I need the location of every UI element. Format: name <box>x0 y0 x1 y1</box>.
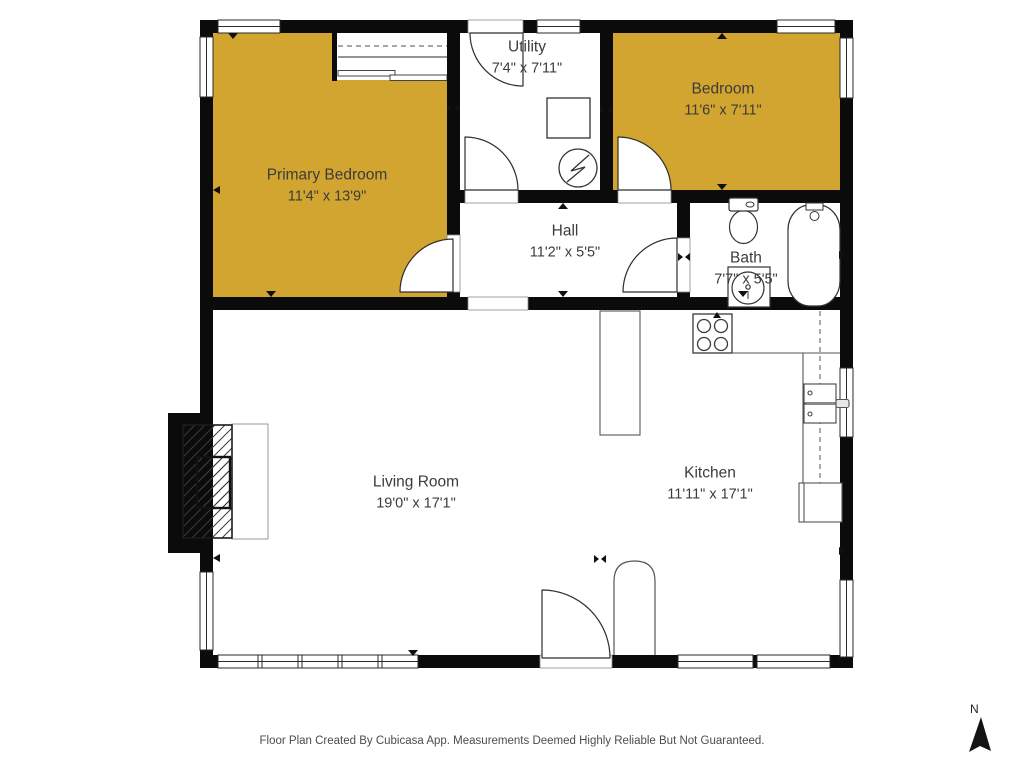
compass-north-label: N <box>970 702 979 716</box>
window <box>537 20 580 33</box>
compass: N <box>952 700 1012 762</box>
footer-disclaimer: Floor Plan Created By Cubicasa App. Meas… <box>0 735 1024 747</box>
arched-fixture-icon <box>614 561 655 655</box>
stove-icon <box>693 314 732 353</box>
window <box>200 572 213 650</box>
window <box>840 580 853 657</box>
window <box>777 20 835 33</box>
window <box>678 655 753 668</box>
toilet-icon <box>729 198 758 244</box>
bathroom-sink-icon <box>728 267 770 307</box>
washer-icon <box>547 98 590 138</box>
utility-hall-door <box>465 137 518 190</box>
highlighted-rooms <box>213 33 840 297</box>
utility-exterior-door <box>470 33 523 86</box>
window <box>757 655 830 668</box>
window <box>840 38 853 98</box>
peninsula-cabinet <box>600 311 640 435</box>
closet-icon <box>332 33 447 81</box>
front-door <box>542 590 610 658</box>
window <box>200 37 213 97</box>
window <box>218 655 418 668</box>
floor-plan-page: Primary Bedroom 11'4" x 13'9" Utility 7'… <box>0 0 1024 768</box>
bath-door <box>623 238 677 292</box>
floor-plan-drawing <box>0 0 1024 768</box>
north-arrow-icon <box>952 700 1012 762</box>
fireplace-icon <box>183 424 268 539</box>
window <box>218 20 280 33</box>
bathtub-icon <box>788 203 840 306</box>
water-heater-icon <box>559 149 597 187</box>
refrigerator-icon <box>799 483 842 522</box>
